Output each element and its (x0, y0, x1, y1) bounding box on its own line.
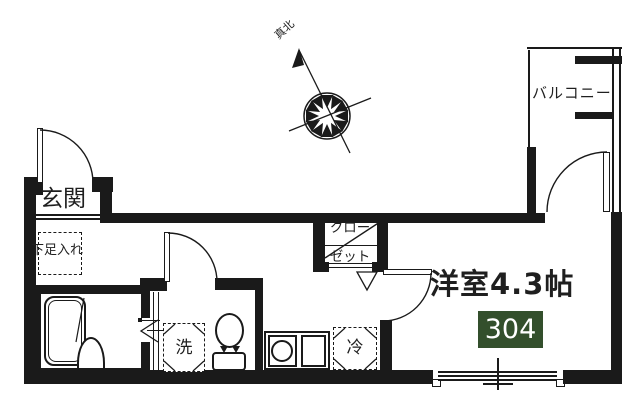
bath-right-wall-lower (141, 342, 150, 377)
bathtub-inner-line (48, 300, 82, 362)
toilet-icon (215, 313, 244, 348)
bath-top-wall (32, 285, 150, 294)
room-door-swing-icon (383, 273, 431, 321)
east-wall (611, 212, 622, 384)
bath-door-top-line (140, 320, 160, 321)
closet-label-line2: ゼット (326, 250, 374, 266)
floor-plan: 真北 バルコニー 玄関 下足入れ クロー ゼット 洗 冷 洋室4.3帖 304 (0, 0, 640, 412)
balcony-right-rail-2 (619, 49, 621, 213)
balcony-door-swing-icon (547, 152, 607, 212)
north-wall (100, 213, 545, 223)
front-door-swing-icon (40, 130, 93, 183)
front-door-leaf (37, 128, 43, 183)
balcony-right-rail-1 (612, 49, 614, 213)
unit-number-badge: 304 (478, 311, 543, 348)
compass-rose-icon (289, 48, 371, 153)
toilet-hinge-right (232, 346, 240, 353)
bath-bifold-tick (147, 330, 164, 331)
sink-burner-icon (271, 340, 293, 362)
entrance-label: 玄関 (40, 186, 86, 212)
balcony-label: バルコニー (532, 85, 612, 102)
shoe-cabinet-label: 下足入れ (31, 244, 83, 259)
closet-door-triangle (357, 272, 377, 290)
closet-opening-line-2 (329, 267, 373, 268)
closet-shelf-line (325, 245, 377, 246)
bath-bottom-wall (32, 368, 150, 377)
entrance-step-line-1 (33, 214, 100, 216)
north-arrow-head (292, 48, 304, 68)
balcony-top-rail (527, 47, 622, 49)
hall-door-swing-icon (168, 233, 217, 282)
true-north-label: 真北 (273, 18, 298, 42)
hall-door-right-wall (215, 278, 263, 290)
kitchen-counter-box (301, 335, 326, 367)
hall-door-leaf (164, 232, 170, 282)
fridge-label: 冷 (333, 339, 377, 359)
main-room-label: 洋室4.3帖 (430, 268, 574, 301)
balcony-left-wall (527, 147, 536, 213)
bath-right-wall-upper (141, 294, 150, 318)
window-end-cap-right (556, 379, 565, 387)
closet-label-line1: クロー (326, 221, 374, 237)
toilet-hinge-left (220, 346, 228, 353)
balcony-door-leaf (603, 152, 610, 212)
washer-label: 洗 (163, 339, 205, 359)
south-wall-right (563, 370, 622, 384)
room-door-lower-wall (380, 320, 392, 372)
toilet-tank (212, 352, 246, 371)
balcony-partition-bar-top (575, 56, 622, 64)
window-center-tick (497, 358, 499, 390)
window-end-cap-left (432, 379, 441, 387)
window-center-dash (483, 383, 513, 385)
bath-left-wall (32, 294, 41, 377)
balcony-partition-bar-bottom (575, 112, 613, 119)
room-door-leaf (383, 269, 432, 275)
entrance-step-line-2 (33, 218, 100, 220)
balcony-left-rail (528, 50, 530, 148)
kitchen-divider-wall (255, 280, 263, 372)
entrance-right-stub-lower (100, 180, 112, 223)
bath-door-dot (138, 318, 142, 322)
